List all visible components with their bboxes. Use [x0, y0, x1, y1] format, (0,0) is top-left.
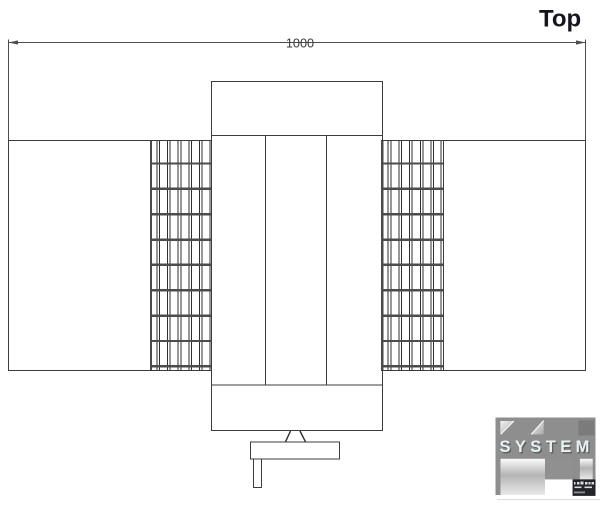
svg-text:1000: 1000	[286, 36, 314, 50]
svg-text:SYSTEM: SYSTEM	[500, 438, 594, 456]
svg-text:Top: Top	[539, 6, 581, 33]
